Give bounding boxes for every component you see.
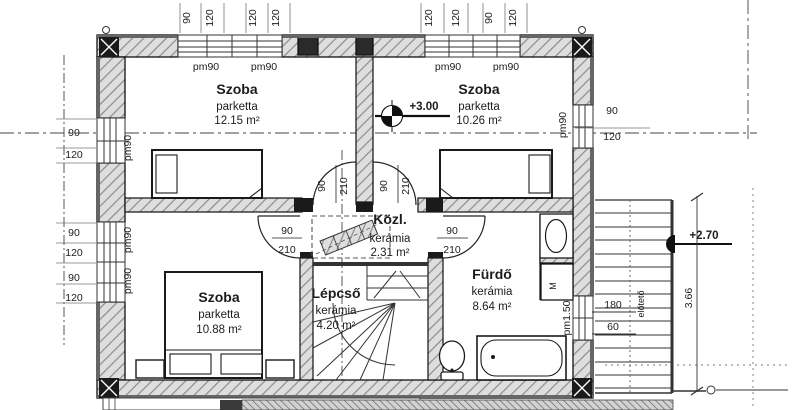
wall-left-1 — [97, 57, 125, 118]
pm90-label: pm90 — [122, 227, 134, 253]
room-label-kozl: Közl. kerámia 2.31 m² — [370, 211, 412, 259]
corner-pin-right — [579, 27, 586, 34]
dim-right: 90 — [606, 105, 618, 117]
room-label-lepcso: Lépcső kerámia 4.20 m² — [311, 285, 360, 332]
nightstand-right — [266, 360, 294, 378]
window-left-upper — [97, 118, 125, 163]
dim-left: 120 — [65, 247, 83, 259]
room-area: 10.26 m² — [456, 115, 502, 127]
window-left-lower — [97, 222, 125, 302]
pm90-label: pm90 — [493, 61, 519, 73]
room-area: 8.64 m² — [473, 301, 512, 313]
dim-stair-side: 60 — [607, 321, 619, 333]
dim-top: 90 — [181, 12, 193, 24]
bathtub — [477, 336, 566, 380]
pm90-label: pm90 — [435, 61, 461, 73]
wall-mid-left — [125, 198, 302, 212]
dim-left: 120 — [65, 149, 83, 161]
room-label-szoba-tl: Szoba parketta 12.15 m² — [214, 81, 260, 127]
room-name: Közl. — [373, 211, 406, 227]
level-floor-value: +3.00 — [409, 101, 438, 113]
window-right-bath — [573, 296, 593, 340]
door-height: 210 — [278, 244, 296, 256]
wall-center-vertical — [356, 57, 373, 202]
pm90-label: pm90 — [251, 61, 277, 73]
nightstand-left — [136, 360, 164, 378]
room-label-furdo: Fürdő kerámia 8.64 m² — [472, 266, 514, 313]
level-marker-floor: +3.00 — [375, 100, 450, 132]
room-area: 10.88 m² — [196, 324, 242, 336]
dim-left: 90 — [68, 272, 80, 284]
top-dimension-chain: 90 120 120 120 120 120 90 120 — [180, 3, 527, 33]
door-width: 90 — [281, 225, 293, 237]
pm90-label: pm90 — [122, 135, 134, 161]
room-name: Szoba — [458, 81, 499, 97]
level-marker-landing: +2.70 — [666, 230, 732, 253]
dim-left: 120 — [65, 292, 83, 304]
exterior-stair — [592, 200, 672, 393]
bed-top-left — [152, 150, 262, 198]
dim-top: 120 — [247, 9, 259, 27]
room-floor: kerámia — [370, 233, 412, 245]
room-name: Fürdő — [472, 266, 512, 282]
washing-machine-label: M — [548, 282, 558, 290]
room-name: Lépcső — [311, 285, 360, 301]
room-floor: kerámia — [472, 286, 514, 298]
dim-top: 120 — [423, 9, 435, 27]
window-top-right-room — [425, 35, 520, 57]
room-name: Szoba — [216, 81, 257, 97]
door-height: 210 — [400, 177, 412, 195]
window-top-left-room — [178, 35, 282, 57]
pm90-label: pm90 — [557, 112, 569, 138]
left-dimension-chain: 90 120 90 120 90 120 — [56, 119, 96, 304]
stair-height-dimension: 3.66 — [683, 193, 703, 395]
door-width: 90 — [378, 180, 390, 192]
room-area: 2.31 m² — [371, 247, 410, 259]
dim-right: 120 — [603, 131, 621, 143]
stair-top-beam — [313, 262, 428, 266]
dim-top: 120 — [204, 9, 216, 27]
pm150-label: pm1.50 — [561, 300, 573, 335]
room-label-szoba-bl: Szoba parketta 10.88 m² — [196, 289, 242, 336]
window-right-upper — [573, 105, 593, 148]
floor-plan-page: +3.00 +2.70 3.66 90 120 120 120 120 120 … — [0, 0, 800, 410]
room-area: 4.20 m² — [317, 320, 356, 332]
toilet — [440, 341, 465, 380]
dim-top: 120 — [507, 9, 519, 27]
corner-pin-left — [103, 27, 110, 34]
room-name: Szoba — [198, 289, 239, 305]
dim-top: 120 — [450, 9, 462, 27]
washing-machine — [541, 264, 573, 300]
flue-block-2 — [356, 37, 373, 55]
washbasin-bowl — [546, 220, 567, 253]
level-landing-value: +2.70 — [689, 230, 718, 242]
room-floor: parketta — [216, 101, 258, 113]
room-floor: kerámia — [316, 305, 358, 317]
pm90-label: pm90 — [122, 268, 134, 294]
door-height: 210 — [338, 177, 350, 195]
door-width: 90 — [446, 225, 458, 237]
wall-bedroom-stair — [300, 258, 313, 380]
room-label-szoba-tr: Szoba parketta 10.26 m² — [456, 81, 502, 127]
room-floor: parketta — [458, 101, 500, 113]
floor-plan-drawing: +3.00 +2.70 3.66 90 120 120 120 120 120 … — [0, 0, 800, 410]
dim-left: 90 — [68, 227, 80, 239]
flue-block-1 — [298, 37, 318, 55]
room-floor: parketta — [198, 309, 240, 321]
wall-left-2 — [97, 163, 125, 222]
stair-height-value: 3.66 — [683, 288, 695, 309]
door-height: 210 — [443, 244, 461, 256]
dim-left: 90 — [68, 127, 80, 139]
wall-left-3 — [97, 302, 125, 380]
bed-top-right — [440, 150, 552, 198]
canopy-label: előtető — [636, 290, 646, 317]
pm90-label: pm90 — [193, 61, 219, 73]
dim-stair-side: 180 — [604, 299, 622, 311]
dim-top: 120 — [270, 9, 282, 27]
stair-direction-arrow — [374, 271, 420, 298]
door-width: 90 — [316, 180, 328, 192]
room-area: 12.15 m² — [214, 115, 260, 127]
dim-top: 90 — [483, 12, 495, 24]
